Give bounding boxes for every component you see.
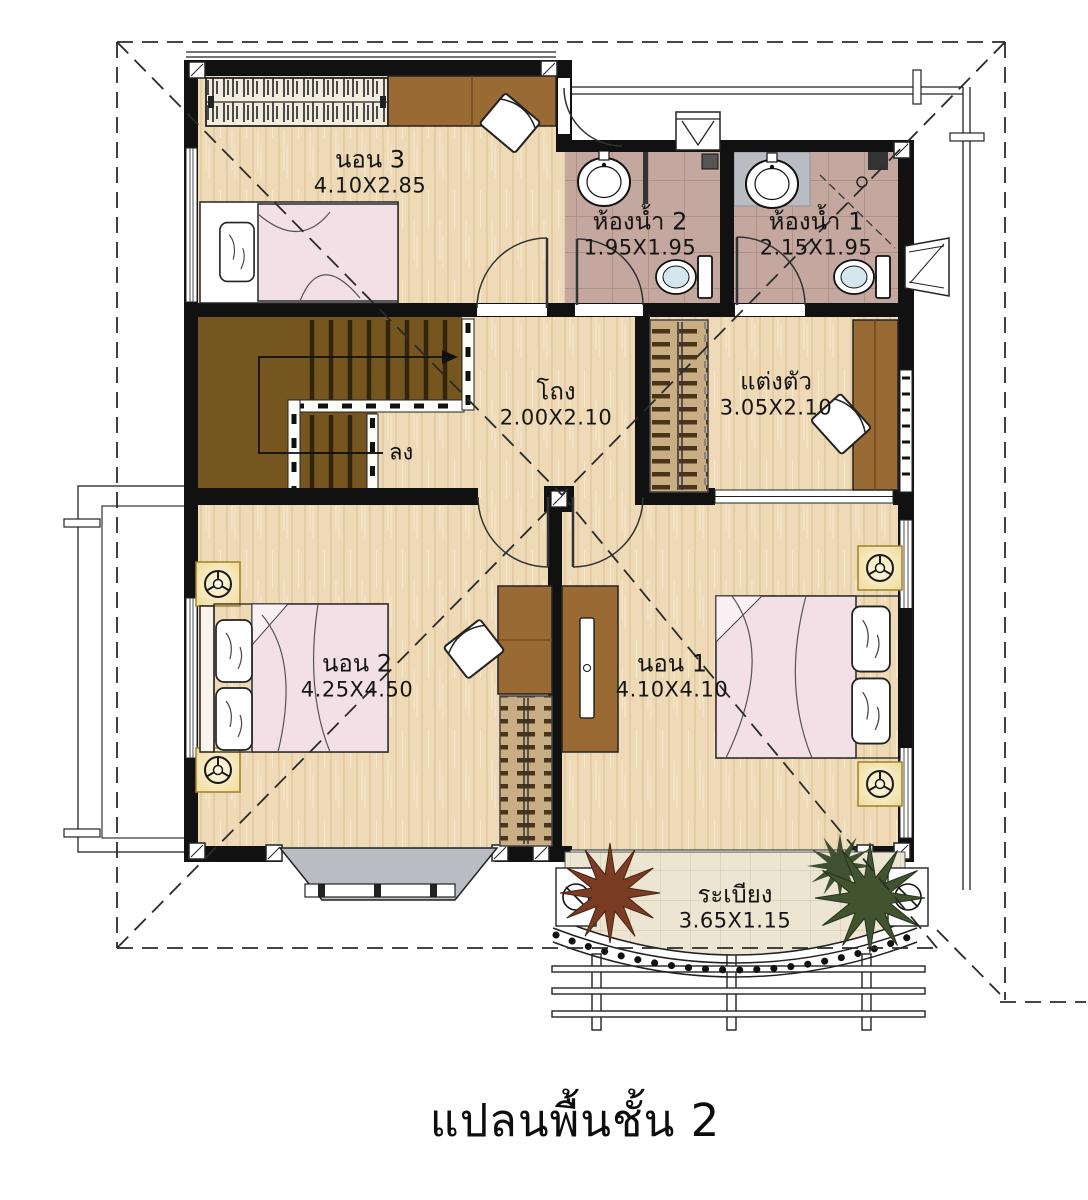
room-name: ห้องน้ำ 1 [760,207,872,235]
room-label-hall: โถง 2.00X2.10 [500,377,612,430]
room-name: ระเบียง [679,880,791,908]
room-label-balcony: ระเบียง 3.65X1.15 [679,880,791,933]
room-name: นอน 2 [301,649,413,677]
room-label-dressing: แต่งตัว 3.05X2.10 [720,367,832,420]
room-label-bathroom-1: ห้องน้ำ 1 2.15X1.95 [760,207,872,260]
room-name: นอน 3 [314,145,426,173]
bay-window [280,848,497,900]
room-label-bathroom-2: ห้องน้ำ 2 1.95X1.95 [584,207,696,260]
room-name: โถง [500,377,612,405]
room-size: 1.95X1.95 [584,236,696,261]
floor-plan-canvas: นอน 3 4.10X2.85 ห้องน้ำ 2 1.95X1.95 ห้อง… [0,0,1088,1200]
nightstand-lamp [196,562,240,606]
room-size: 3.05X2.10 [720,396,832,421]
nightstand-lamp [858,762,902,806]
closet-shelves [650,320,708,492]
closet-shelves [500,696,552,846]
room-size: 4.10X2.85 [314,174,426,199]
stairs-down-label: ลง [389,435,413,470]
vent-chute-symbol [676,112,720,150]
room-label-bedroom-3: นอน 3 4.10X2.85 [314,145,426,198]
room-size: 4.25X4.50 [301,678,413,703]
room-size: 4.10X4.10 [616,678,728,703]
pergola-deck [552,954,925,1030]
bed-3 [200,202,398,303]
room-name: แต่งตัว [720,367,832,395]
toilet [656,256,712,298]
toilet [834,256,890,298]
plan-title: แปลนพื้นชั้น 2 [430,1084,721,1156]
room-size: 2.15X1.95 [760,236,872,261]
floor-plan-drawing [0,0,1088,1200]
room-size: 2.00X2.10 [500,406,612,431]
headboard [898,608,912,748]
tv [580,618,594,718]
room-name: นอน 1 [616,649,728,677]
room-label-bedroom-1: นอน 1 4.10X4.10 [616,649,728,702]
room-label-bedroom-2: นอน 2 4.25X4.50 [301,649,413,702]
nightstand-lamp [858,546,902,590]
nightstand-lamp [196,748,240,792]
room-size: 3.65X1.15 [679,909,791,934]
side-roof-outline [64,486,186,852]
room-name: ห้องน้ำ 2 [584,207,696,235]
